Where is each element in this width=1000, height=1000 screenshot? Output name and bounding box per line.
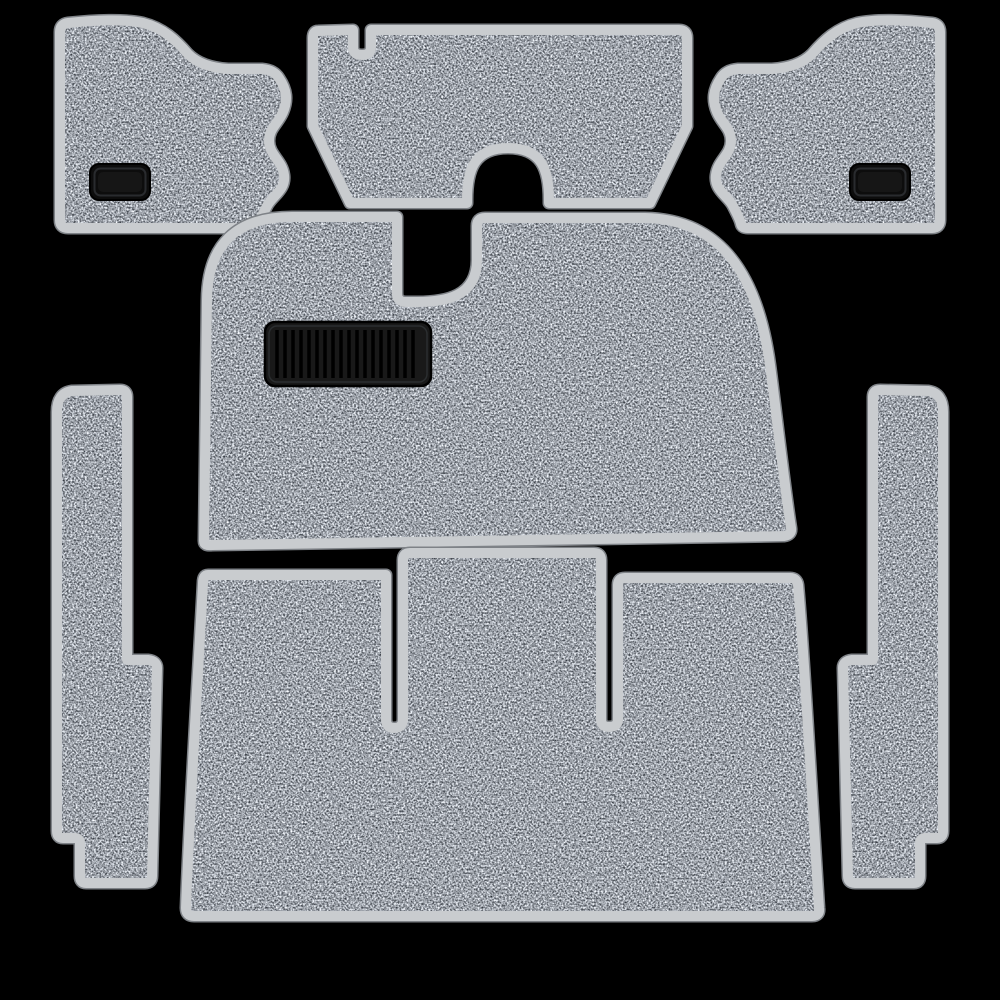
piece-front-floor-panel: Front floor panel with ribbed heel pad xyxy=(204,217,793,552)
piece-right-kick-panel: Right kick panel with vinyl heel pad xyxy=(714,20,942,234)
piece-rear-floor-panel: Rear floor panel with seat-mount slots xyxy=(186,553,821,923)
piece-rear-firewall-panel: Rear firewall panel with tunnel arch cut… xyxy=(313,30,689,209)
piece-left-rocker-strip: Left rocker sill strip xyxy=(57,390,159,889)
piece-left-kick-panel: Left kick panel with vinyl heel pad xyxy=(60,20,288,234)
left-kick-heel-pad xyxy=(90,164,150,200)
right-kick-heel-pad xyxy=(850,164,910,200)
front-floor-ribbed-heel-pad xyxy=(265,322,431,386)
carpet-kit-product-image: Left kick panel with vinyl heel pad Rear… xyxy=(0,0,1000,1000)
piece-right-rocker-strip: Right rocker sill strip xyxy=(843,390,945,889)
carpet-kit-canvas: Left kick panel with vinyl heel pad Rear… xyxy=(0,0,1000,1000)
